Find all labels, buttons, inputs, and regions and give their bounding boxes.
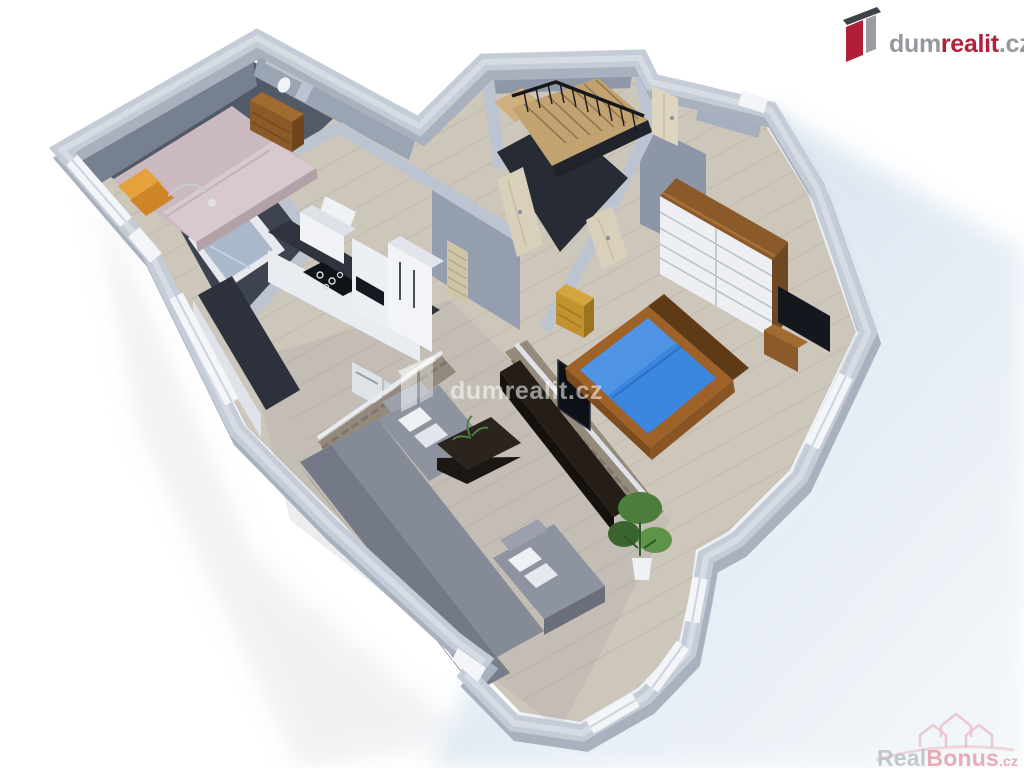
watermark-text: dumrealit.cz xyxy=(450,377,603,405)
dumrealit-logo-icon xyxy=(843,7,881,62)
dumrealit-logo: dumrealit.cz xyxy=(843,7,1024,62)
window-wing-ne xyxy=(740,98,766,106)
logo-text: dumrealit.cz xyxy=(889,30,1024,58)
realbonus-text: RealBonus.cz xyxy=(877,745,1018,768)
logo-text-dum: dum xyxy=(889,30,941,58)
logo-text-realit: realit xyxy=(941,30,1000,58)
realbonus-text-real: Real xyxy=(877,745,926,768)
floorplan-photo: dumrealit.cz dumrealit.cz RealBonus.cz xyxy=(0,0,1024,768)
realbonus-text-cz: .cz xyxy=(999,753,1018,768)
logo-text-cz: .cz xyxy=(999,30,1024,58)
realbonus-text-bonus: Bonus xyxy=(926,745,999,768)
floorplan-render: dumrealit.cz dumrealit.cz RealBonus.cz xyxy=(0,0,1024,768)
